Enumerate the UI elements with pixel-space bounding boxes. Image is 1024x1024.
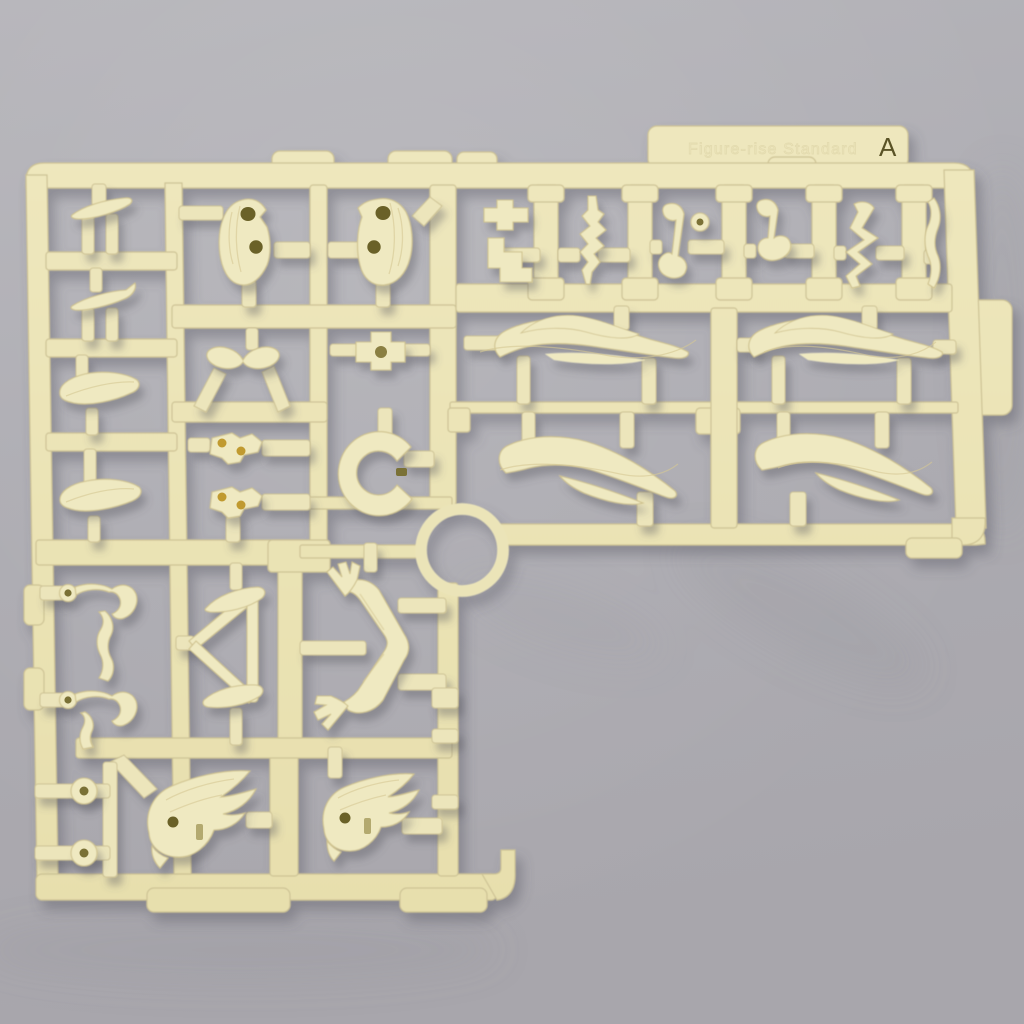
svg-text:Figure-rise Standard: Figure-rise Standard (688, 141, 858, 158)
svg-text:A: A (879, 132, 897, 162)
